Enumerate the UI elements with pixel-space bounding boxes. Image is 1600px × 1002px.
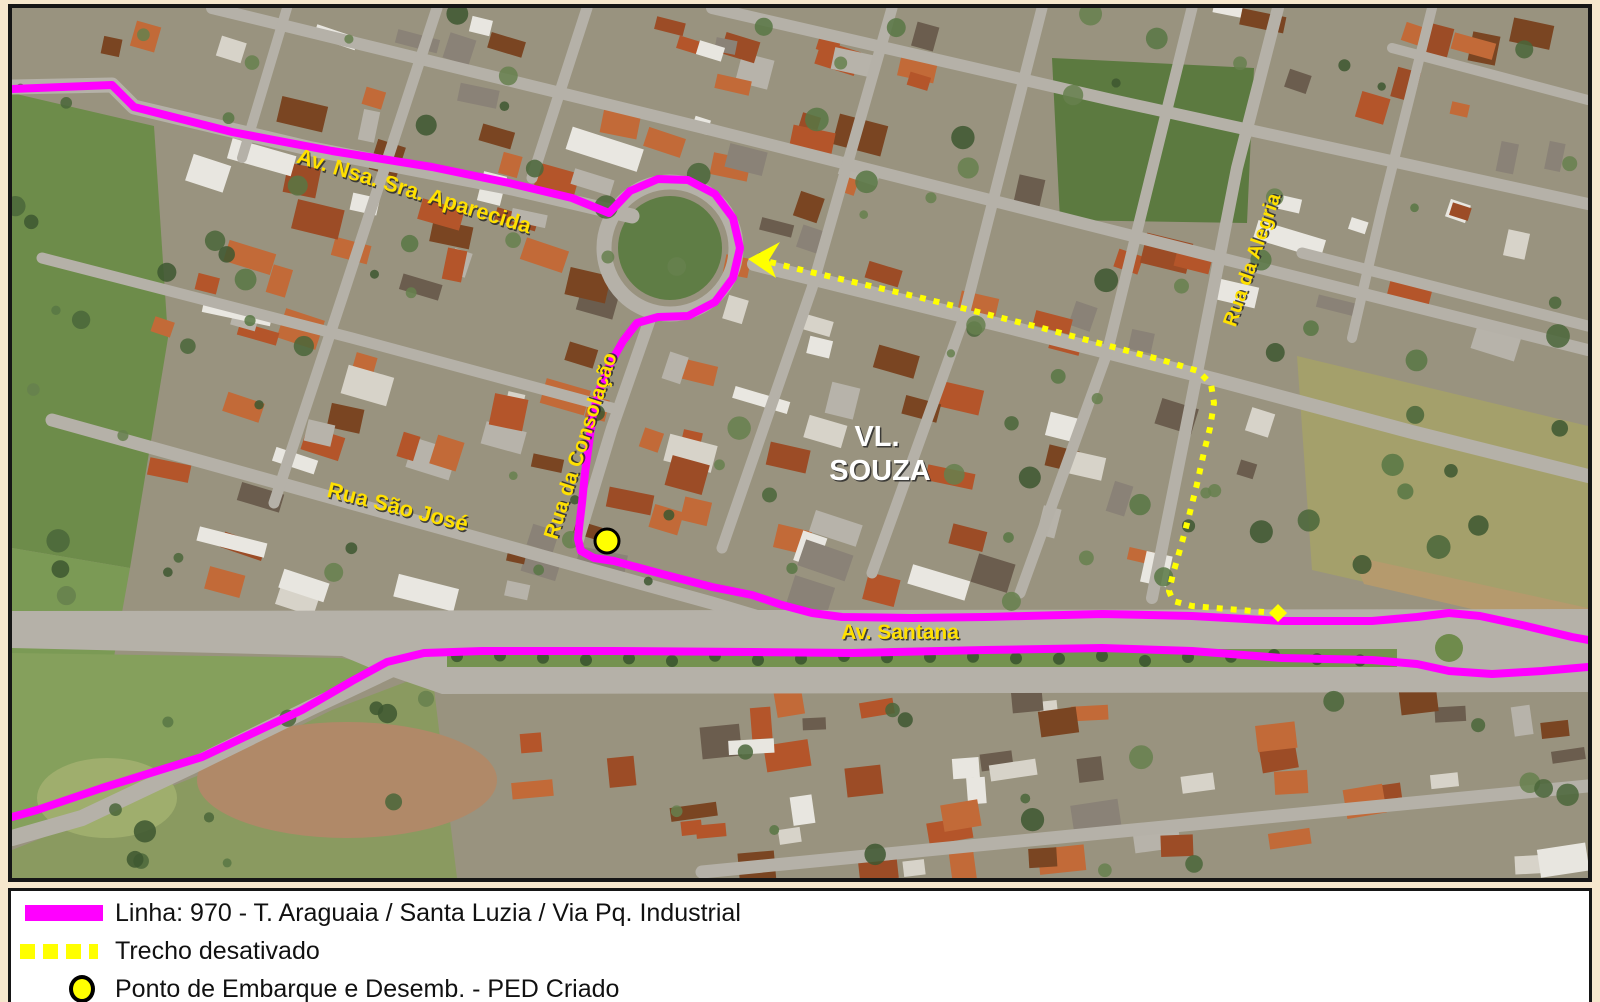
tree xyxy=(1098,863,1112,877)
tree xyxy=(958,157,979,178)
tree xyxy=(1129,745,1153,769)
tree xyxy=(1185,855,1203,873)
aerial-map: Av. Nsa. Sra. AparecidaAv. Nsa. Sra. Apa… xyxy=(12,8,1588,878)
building-roof xyxy=(1430,772,1459,789)
tree xyxy=(52,560,70,578)
tree xyxy=(944,464,965,485)
tree xyxy=(898,712,913,727)
tree xyxy=(1003,532,1014,543)
tree xyxy=(1338,59,1350,71)
tree xyxy=(223,112,235,124)
tree xyxy=(526,160,544,178)
tree xyxy=(1556,784,1578,806)
tree xyxy=(1004,416,1018,430)
tree xyxy=(137,28,150,41)
tree xyxy=(218,246,234,262)
tree xyxy=(1515,40,1533,58)
tree xyxy=(1020,794,1030,804)
building-roof xyxy=(790,794,816,826)
building-roof xyxy=(1160,834,1193,857)
tree xyxy=(1298,509,1320,531)
district-label-line1: VL. xyxy=(854,421,899,453)
tree xyxy=(1381,454,1403,476)
tree xyxy=(727,416,750,439)
tree xyxy=(951,126,974,149)
tree xyxy=(864,844,885,865)
inactive-stretch-swatch xyxy=(20,944,98,959)
building-roof xyxy=(778,827,802,845)
tree xyxy=(1444,464,1458,478)
tree xyxy=(644,577,653,586)
tree xyxy=(1377,82,1385,90)
tree xyxy=(1549,296,1561,308)
building-roof xyxy=(607,756,637,788)
tree xyxy=(714,459,725,470)
median-tree xyxy=(1010,652,1022,664)
tree xyxy=(1534,779,1553,798)
building-roof xyxy=(489,393,529,431)
tree xyxy=(1063,85,1083,105)
legend-label-ped: Ponto de Embarque e Desemb. - PED Criado xyxy=(115,975,619,1002)
building-roof xyxy=(902,859,925,877)
tree xyxy=(1410,203,1419,212)
tree xyxy=(324,563,343,582)
tree xyxy=(46,529,69,552)
median-tree xyxy=(1053,653,1065,665)
tree xyxy=(1406,406,1424,424)
tree xyxy=(57,586,76,605)
tree xyxy=(401,235,418,252)
tree xyxy=(51,306,60,315)
tree xyxy=(855,171,878,194)
district-label-line2: SOUZA xyxy=(829,455,931,487)
tree xyxy=(834,57,847,70)
legend-row-route: Linha: 970 - T. Araguaia / Santa Luzia /… xyxy=(19,894,1589,932)
tree xyxy=(509,471,518,480)
tree xyxy=(244,315,255,326)
tree xyxy=(671,805,683,817)
tree xyxy=(1111,78,1120,87)
tree xyxy=(887,18,906,37)
tree xyxy=(966,315,985,334)
tree xyxy=(1397,483,1413,499)
tree xyxy=(1406,349,1428,371)
building-roof xyxy=(1028,847,1057,868)
tree xyxy=(27,383,40,396)
tree xyxy=(499,66,518,85)
tree xyxy=(416,115,437,136)
tree xyxy=(370,270,379,279)
building-roof xyxy=(1540,720,1569,739)
building-roof xyxy=(844,765,883,798)
tree xyxy=(1051,369,1066,384)
tree xyxy=(1174,279,1189,294)
tree xyxy=(162,716,173,727)
tree xyxy=(345,542,357,554)
route-map-canvas: Av. Nsa. Sra. AparecidaAv. Nsa. Sra. Apa… xyxy=(0,0,1600,1002)
tree xyxy=(1266,343,1285,362)
tree xyxy=(109,803,122,816)
tree xyxy=(134,820,156,842)
tree xyxy=(385,793,402,810)
tree xyxy=(1092,393,1103,404)
tree xyxy=(755,18,773,36)
tree xyxy=(1021,808,1044,831)
tree xyxy=(1303,320,1319,336)
tree xyxy=(925,192,936,203)
swatch-column xyxy=(19,944,115,959)
tree xyxy=(1562,156,1577,171)
tree xyxy=(947,349,955,357)
tree xyxy=(1233,56,1247,70)
tree xyxy=(245,55,260,70)
street-label-av-santana: Av. Santana xyxy=(841,621,959,644)
tree xyxy=(762,488,777,503)
tree xyxy=(370,701,384,715)
building-roof xyxy=(696,823,727,839)
tree xyxy=(24,215,38,229)
tree xyxy=(235,269,257,291)
median-tree xyxy=(1139,655,1151,667)
field-patch xyxy=(1052,58,1254,223)
tree xyxy=(418,691,434,707)
building-roof xyxy=(1077,756,1104,783)
ped-point-swatch xyxy=(69,975,95,1002)
legend: Linha: 970 - T. Araguaia / Santa Luzia /… xyxy=(8,888,1592,1002)
route-line-swatch xyxy=(25,905,103,921)
tree xyxy=(786,563,797,574)
roundabout-center xyxy=(1435,634,1463,662)
tree xyxy=(1471,718,1485,732)
tree xyxy=(667,257,686,276)
map-frame: Av. Nsa. Sra. AparecidaAv. Nsa. Sra. Apa… xyxy=(8,4,1592,882)
building-roof xyxy=(1434,706,1466,723)
tree xyxy=(1094,268,1118,292)
building-roof xyxy=(101,36,123,57)
median-tree xyxy=(580,654,592,666)
tree xyxy=(1079,550,1094,565)
tree xyxy=(1019,467,1041,489)
tree xyxy=(173,553,183,563)
ped-marker xyxy=(595,529,619,553)
tree xyxy=(1551,420,1568,437)
tree xyxy=(60,97,72,109)
building-roof xyxy=(1038,707,1079,738)
tree xyxy=(406,287,417,298)
building-roof xyxy=(750,707,773,740)
tree xyxy=(117,430,128,441)
tree xyxy=(157,263,176,282)
legend-row-ped: Ponto de Embarque e Desemb. - PED Criado xyxy=(19,970,1589,1002)
tree xyxy=(1468,515,1488,535)
tree xyxy=(1427,535,1451,559)
tree xyxy=(1129,494,1150,515)
building-roof xyxy=(520,732,543,753)
legend-row-inactive: Trecho desativado xyxy=(19,932,1589,970)
tree xyxy=(254,400,263,409)
tree xyxy=(1250,520,1273,543)
tree xyxy=(663,510,674,521)
building-roof xyxy=(952,757,980,779)
tree xyxy=(1546,324,1570,348)
tree xyxy=(500,101,510,111)
tree xyxy=(769,825,779,835)
tree xyxy=(223,858,232,867)
tree xyxy=(805,108,829,132)
swatch-column xyxy=(19,975,115,1002)
tree xyxy=(294,336,314,356)
tree xyxy=(180,338,196,354)
tree xyxy=(163,567,173,577)
legend-label-inactive: Trecho desativado xyxy=(115,937,320,966)
tree xyxy=(1002,592,1021,611)
tree xyxy=(204,812,214,822)
tree xyxy=(72,311,90,329)
tree xyxy=(738,744,753,759)
tree xyxy=(1323,691,1344,712)
legend-label-route: Linha: 970 - T. Araguaia / Santa Luzia /… xyxy=(115,899,741,928)
tree xyxy=(533,565,544,576)
building-roof xyxy=(802,717,826,730)
tree xyxy=(1353,555,1372,574)
tree xyxy=(1208,484,1221,497)
median-tree xyxy=(666,655,678,667)
tree xyxy=(127,851,144,868)
tree xyxy=(288,176,308,196)
building-roof xyxy=(1274,770,1308,795)
tree xyxy=(1146,28,1168,50)
tree xyxy=(601,251,614,264)
tree xyxy=(885,703,900,718)
building-roof xyxy=(949,851,977,878)
tree xyxy=(859,210,868,219)
swatch-column xyxy=(19,905,115,921)
tree xyxy=(344,34,353,43)
building-roof xyxy=(1255,721,1297,752)
